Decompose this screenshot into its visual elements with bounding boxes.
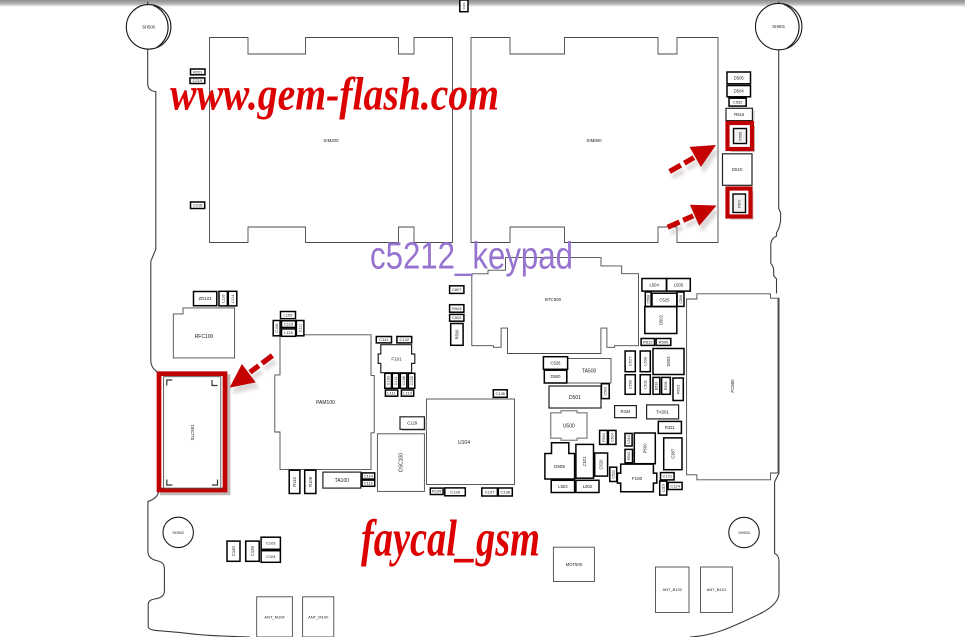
svg-text:L500: L500 — [643, 356, 648, 366]
svg-text:C110: C110 — [284, 322, 294, 327]
svg-text:TA500: TA500 — [582, 369, 597, 375]
svg-text:SIM800: SIM800 — [586, 138, 602, 143]
svg-text:D504: D504 — [734, 89, 745, 94]
svg-text:C532: C532 — [733, 100, 743, 105]
svg-text:R501: R501 — [676, 384, 681, 394]
svg-text:C124: C124 — [670, 483, 680, 488]
svg-text:R516: R516 — [734, 112, 745, 117]
svg-text:BTC500: BTC500 — [545, 297, 562, 302]
svg-text:C104: C104 — [266, 554, 276, 559]
svg-text:C135: C135 — [410, 376, 414, 385]
svg-text:C114: C114 — [364, 473, 374, 478]
svg-text:D510: D510 — [732, 167, 743, 172]
svg-text:C509: C509 — [628, 379, 633, 389]
svg-text:C506: C506 — [679, 295, 683, 304]
svg-text:C103: C103 — [266, 541, 276, 546]
svg-text:R508: R508 — [664, 382, 668, 391]
svg-text:L111: L111 — [387, 391, 396, 396]
svg-text:R500: R500 — [659, 339, 669, 344]
svg-text:L501: L501 — [643, 379, 648, 389]
svg-text:C137: C137 — [485, 489, 495, 494]
svg-text:ANT_M100: ANT_M100 — [308, 614, 329, 619]
svg-text:C522: C522 — [612, 470, 616, 479]
svg-text:SH501: SH501 — [772, 24, 785, 29]
svg-text:ANT_M104: ANT_M104 — [264, 614, 285, 619]
svg-text:RFC100: RFC100 — [195, 334, 214, 340]
svg-text:C139: C139 — [250, 546, 255, 557]
svg-text:L105: L105 — [284, 313, 294, 318]
svg-text:C218: C218 — [193, 203, 203, 208]
svg-text:C131: C131 — [394, 376, 398, 385]
svg-text:MOT500: MOT500 — [566, 562, 583, 567]
svg-text:F506: F506 — [738, 132, 742, 141]
svg-text:L505: L505 — [674, 282, 684, 287]
svg-text:PAM100: PAM100 — [316, 400, 335, 406]
svg-text:TA501: TA501 — [656, 410, 669, 415]
svg-text:C141: C141 — [379, 337, 389, 342]
svg-text:SH502: SH502 — [172, 531, 184, 535]
svg-text:C525: C525 — [659, 297, 670, 302]
svg-text:www.gem-flash.com: www.gem-flash.com — [170, 69, 499, 121]
svg-text:R334: R334 — [620, 409, 631, 414]
svg-text:OSC100: OSC100 — [399, 453, 405, 472]
svg-text:F100: F100 — [632, 476, 643, 481]
svg-text:R331: R331 — [665, 425, 676, 430]
svg-text:R110: R110 — [292, 476, 297, 486]
svg-text:C510: C510 — [627, 435, 631, 444]
svg-text:L504: L504 — [649, 282, 659, 287]
svg-text:C520: C520 — [599, 459, 604, 470]
svg-text:U104: U104 — [458, 440, 470, 446]
svg-text:C526: C526 — [550, 361, 561, 366]
svg-text:ANT_B101: ANT_B101 — [707, 587, 727, 592]
svg-text:C387: C387 — [670, 448, 675, 459]
svg-text:L113: L113 — [403, 391, 412, 396]
svg-text:C807: C807 — [452, 287, 462, 292]
svg-text:R502: R502 — [627, 452, 631, 461]
svg-text:R506: R506 — [454, 329, 459, 340]
svg-text:C138: C138 — [402, 376, 406, 385]
svg-text:SLC501: SLC501 — [190, 424, 195, 441]
svg-text:R512: R512 — [643, 339, 653, 344]
svg-text:ANT_B102: ANT_B102 — [662, 587, 682, 592]
svg-text:SH500: SH500 — [142, 24, 155, 29]
svg-text:P500: P500 — [642, 443, 647, 453]
svg-text:D509: D509 — [554, 464, 565, 469]
svg-text:L502: L502 — [583, 484, 593, 489]
svg-text:D500: D500 — [550, 374, 561, 379]
svg-text:C201: C201 — [462, 2, 466, 10]
svg-text:C136: C136 — [495, 391, 505, 396]
svg-text:D502: D502 — [658, 314, 663, 325]
svg-text:R504: R504 — [602, 433, 606, 442]
svg-text:L115: L115 — [284, 330, 293, 335]
svg-text:faycal_gsm: faycal_gsm — [361, 511, 540, 568]
svg-text:C128: C128 — [450, 489, 460, 494]
svg-text:C527: C527 — [628, 356, 633, 366]
svg-text:L110: L110 — [662, 484, 666, 492]
svg-text:R108: R108 — [432, 489, 442, 494]
svg-text:C521: C521 — [582, 456, 587, 467]
svg-text:SIM200: SIM200 — [323, 138, 339, 143]
svg-text:D501: D501 — [569, 395, 581, 401]
svg-text:C111: C111 — [299, 324, 303, 333]
svg-text:U500: U500 — [563, 423, 575, 429]
svg-text:L116: L116 — [222, 295, 226, 303]
svg-text:F101: F101 — [391, 357, 402, 362]
svg-text:C140: C140 — [231, 546, 236, 557]
svg-text:SH503: SH503 — [738, 531, 750, 535]
svg-text:FC500: FC500 — [730, 379, 735, 393]
svg-text:C106: C106 — [275, 324, 279, 333]
svg-text:C129: C129 — [407, 421, 418, 426]
svg-text:C524: C524 — [610, 433, 614, 442]
svg-text:C136: C136 — [501, 489, 511, 494]
svg-text:B510: B510 — [655, 382, 659, 390]
svg-text:F507: F507 — [738, 199, 742, 208]
svg-text:C502: C502 — [452, 315, 462, 320]
svg-text:R503: R503 — [452, 306, 462, 311]
svg-text:L503: L503 — [558, 484, 568, 489]
svg-text:C121: C121 — [663, 474, 673, 479]
svg-text:D503: D503 — [666, 356, 671, 367]
svg-text:ZD101: ZD101 — [199, 296, 213, 301]
svg-text:C508: C508 — [646, 295, 650, 304]
svg-text:C130: C130 — [387, 376, 391, 385]
svg-text:L114: L114 — [231, 295, 235, 303]
svg-text:D505: D505 — [734, 75, 745, 80]
svg-text:C142: C142 — [400, 337, 410, 342]
svg-text:C112: C112 — [364, 481, 374, 486]
svg-text:TA100: TA100 — [335, 478, 350, 484]
svg-text:R109: R109 — [308, 476, 313, 487]
svg-text:c5212_keypad: c5212_keypad — [370, 236, 573, 278]
svg-text:C503: C503 — [604, 387, 608, 396]
